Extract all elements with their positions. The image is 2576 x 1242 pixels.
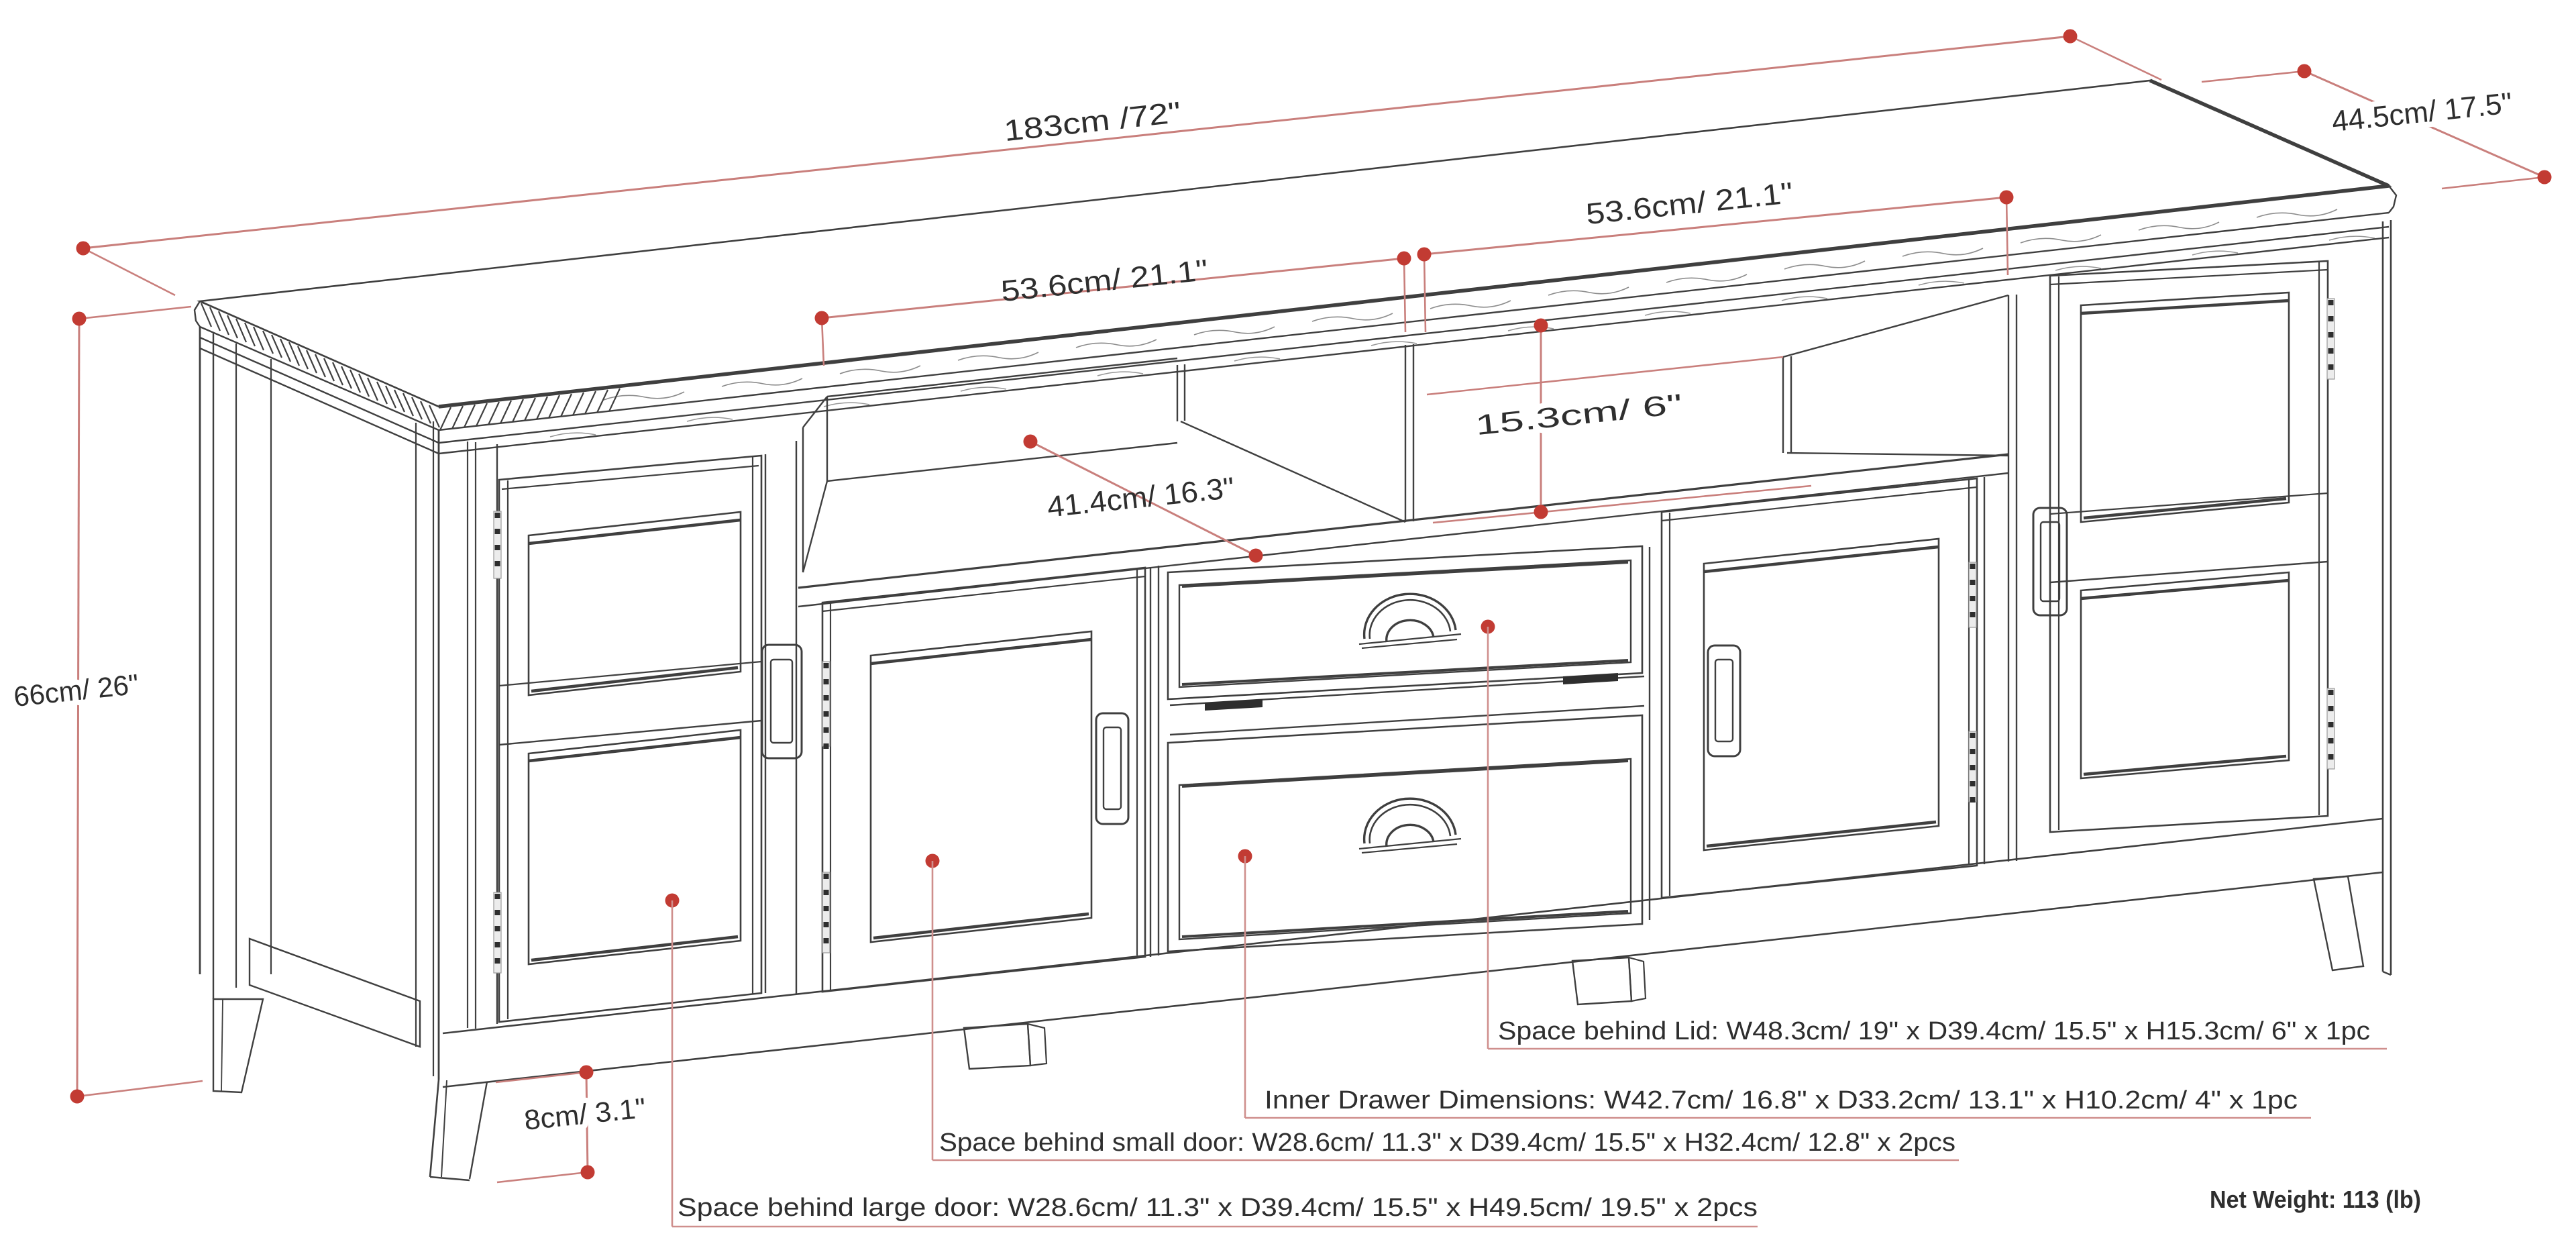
svg-text:Space behind large door: W28.6: Space behind large door: W28.6cm/ 11.3" …: [678, 1194, 1758, 1222]
svg-text:Inner Drawer Dimensions: W42.7: Inner Drawer Dimensions: W42.7cm/ 16.8" …: [1265, 1086, 2298, 1115]
svg-text:Space behind small door: W28.6: Space behind small door: W28.6cm/ 11.3" …: [939, 1129, 1955, 1157]
svg-text:Space behind Lid: W48.3cm/ 19": Space behind Lid: W48.3cm/ 19" x D39.4cm…: [1498, 1017, 2370, 1045]
svg-text:Net Weight: 113 (lb): Net Weight: 113 (lb): [2210, 1186, 2421, 1213]
